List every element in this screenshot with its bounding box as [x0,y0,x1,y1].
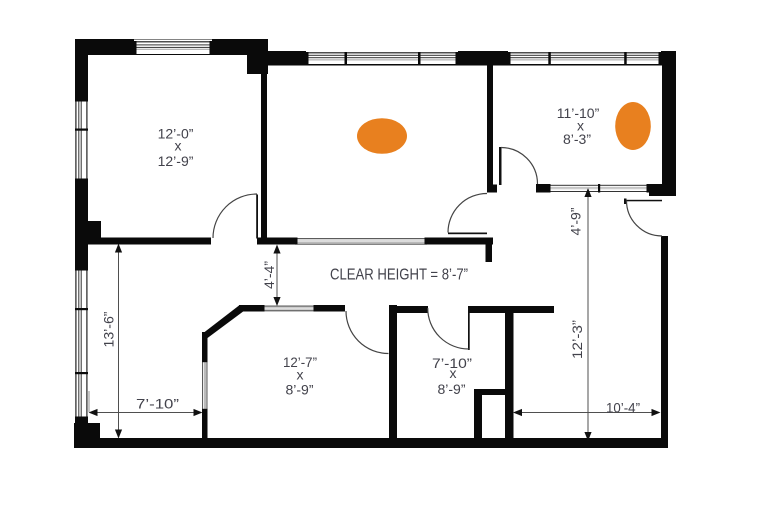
svg-text:8’-9”: 8’-9” [437,381,465,397]
svg-text:x: x [297,367,304,383]
svg-text:12’-9”: 12’-9” [158,153,194,169]
svg-text:x: x [450,365,457,381]
svg-text:4’-4”: 4’-4” [261,261,277,289]
svg-text:13’-6”: 13’-6” [101,311,117,347]
svg-text:7’-10”: 7’-10” [136,396,179,412]
svg-text:4’-9”: 4’-9” [568,207,584,235]
svg-text:8’-3”: 8’-3” [563,131,591,147]
svg-text:12’-3”: 12’-3” [569,320,585,359]
svg-text:x: x [175,138,182,154]
svg-text:8’-9”: 8’-9” [285,382,313,398]
svg-text:CLEAR HEIGHT = 8’-7”: CLEAR HEIGHT = 8’-7” [330,267,468,284]
svg-text:10’-4”: 10’-4” [606,400,640,416]
